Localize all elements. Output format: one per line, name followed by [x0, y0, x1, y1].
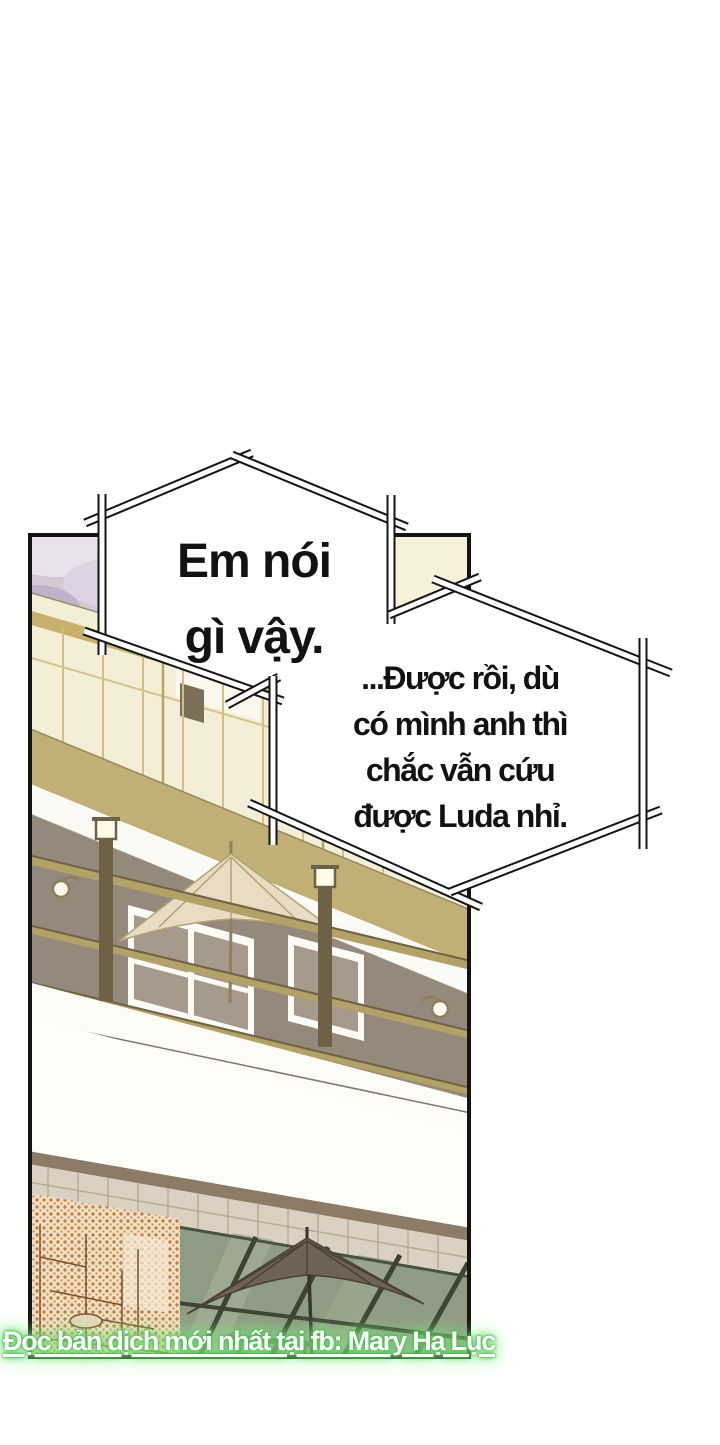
bubble-line: được Luda nhỉ.	[348, 793, 572, 839]
bubble-line: có mình anh thì	[348, 701, 572, 747]
comic-page: { "comic": { "bubble1": { "lines": ["Em …	[0, 0, 720, 1445]
bubble-line: gì vậy.	[144, 600, 364, 676]
bubble-line: Em nói	[144, 524, 364, 600]
speech-bubble-2: ...Được rồi, dù có mình anh thì chắc vẫn…	[348, 655, 572, 839]
bubble-line: ...Được rồi, dù	[348, 655, 572, 701]
translator-watermark: Đọc bản dịch mới nhất tại fb: Mary Hạ Lụ…	[3, 1326, 717, 1357]
speech-bubble-1: Em nói gì vậy.	[144, 524, 364, 676]
bubble-line: chắc vẫn cứu	[348, 747, 572, 793]
